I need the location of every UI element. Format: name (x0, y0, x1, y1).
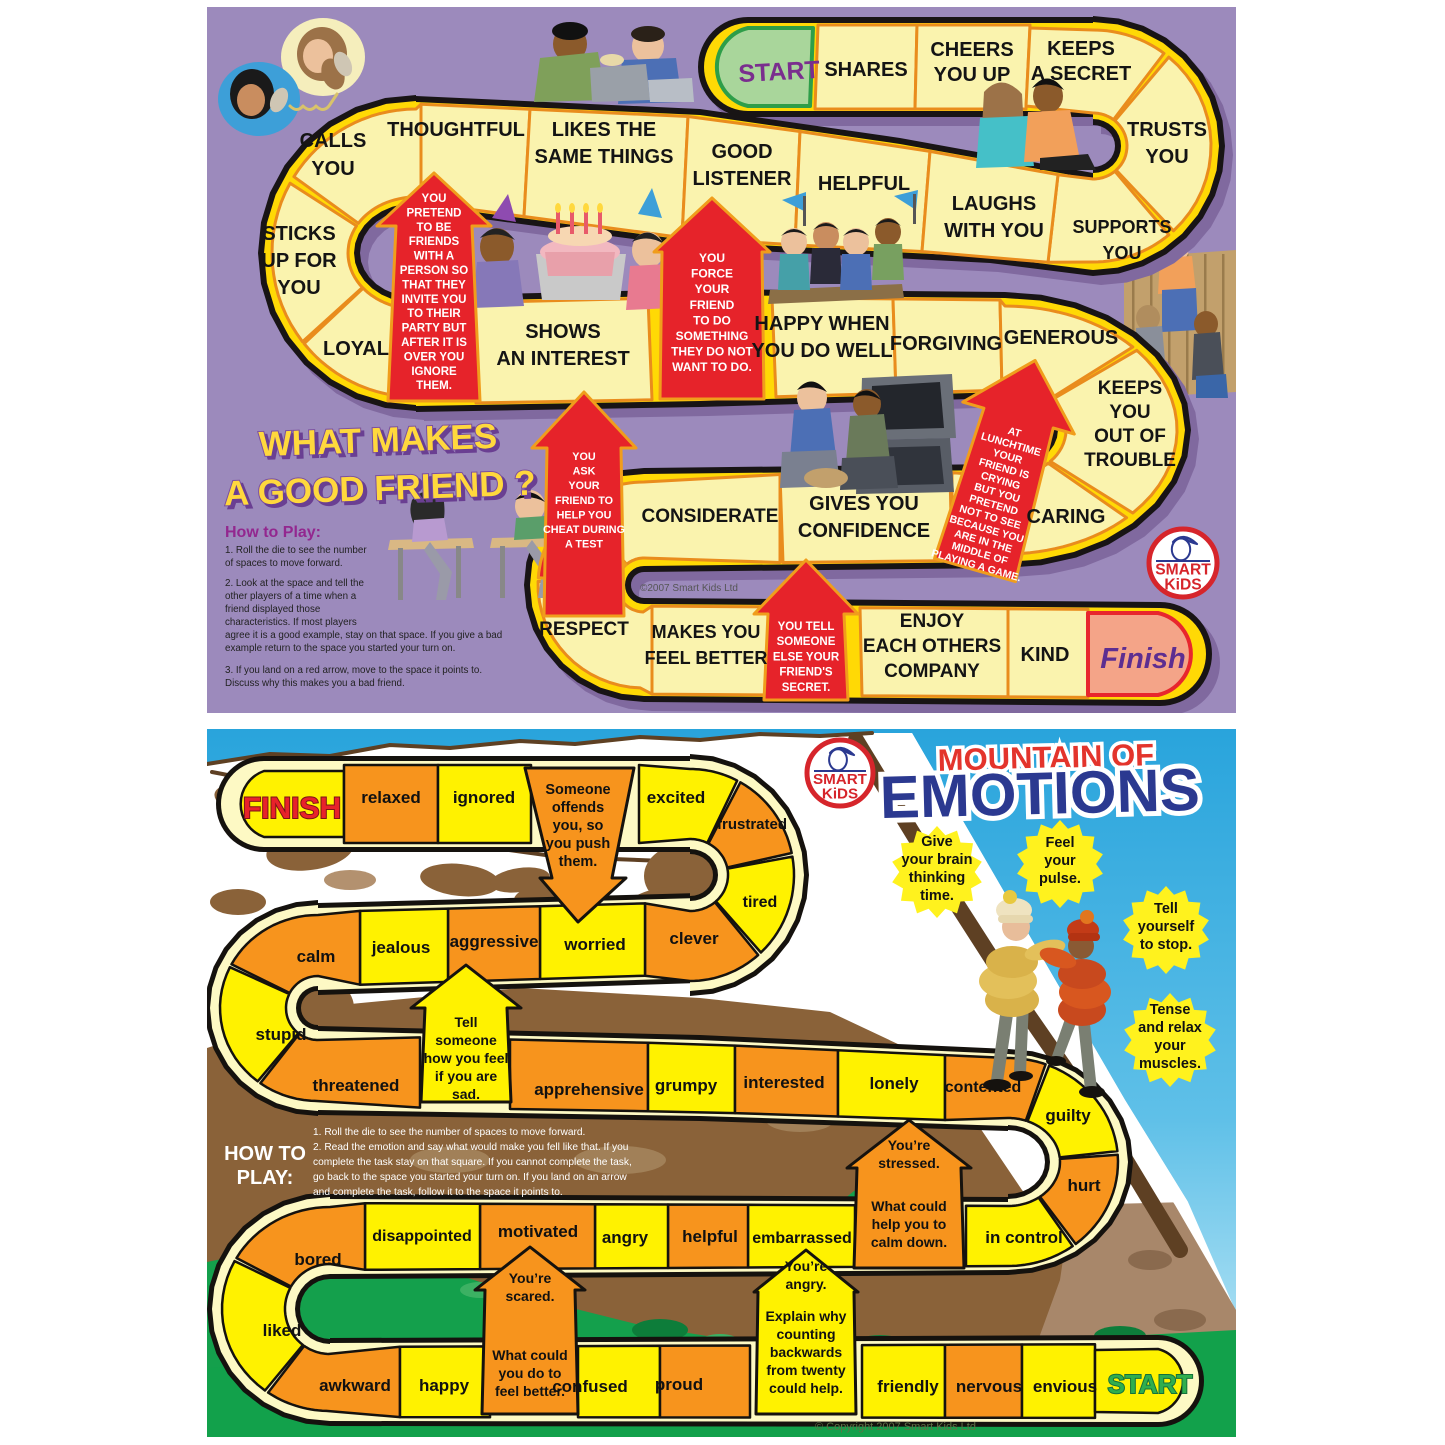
svg-text:START: START (738, 56, 821, 88)
svg-text:Tense: Tense (1150, 1002, 1191, 1018)
svg-text:HAPPY WHEN: HAPPY WHEN (754, 313, 889, 335)
svg-text:SHOWS: SHOWS (525, 321, 601, 343)
svg-text:THOUGHTFUL: THOUGHTFUL (387, 119, 525, 141)
svg-text:1. Roll the die to see the num: 1. Roll the die to see the number of spa… (313, 1127, 585, 1138)
svg-text:YOU UP: YOU UP (934, 64, 1011, 86)
svg-text:pulse.: pulse. (1039, 871, 1081, 887)
svg-text:KEEPS: KEEPS (1098, 378, 1162, 399)
svg-text:stupid: stupid (256, 1025, 307, 1044)
svg-text:KEEPS: KEEPS (1047, 38, 1115, 60)
svg-text:A SECRET: A SECRET (1031, 63, 1131, 85)
svg-text:UP FOR: UP FOR (261, 250, 337, 272)
svg-text:hurt: hurt (1067, 1176, 1100, 1195)
svg-text:STICKS: STICKS (262, 223, 335, 245)
svg-text:stressed.: stressed. (878, 1155, 939, 1171)
svg-text:SECRET.: SECRET. (782, 682, 831, 694)
svg-text:friendly: friendly (877, 1377, 939, 1396)
svg-text:INVITE YOU: INVITE YOU (402, 294, 467, 306)
svg-text:relaxed: relaxed (361, 788, 421, 807)
svg-text:counting: counting (776, 1326, 835, 1342)
svg-text:3. If you land on a red arrow,: 3. If you land on a red arrow, move to t… (225, 665, 482, 676)
svg-text:your: your (1154, 1038, 1186, 1054)
svg-text:LIKES THE: LIKES THE (552, 119, 656, 141)
svg-text:FORCE: FORCE (691, 267, 733, 281)
svg-text:SOMETHING: SOMETHING (676, 329, 749, 343)
svg-text:angry: angry (602, 1228, 649, 1247)
svg-text:Tell: Tell (1154, 901, 1178, 917)
svg-text:Discuss why this makes you a b: Discuss why this makes you a bad friend. (225, 678, 405, 689)
svg-text:THAT THEY: THAT THEY (402, 279, 466, 291)
svg-text:MAKES YOU: MAKES YOU (652, 622, 761, 642)
svg-text:worried: worried (563, 935, 625, 954)
svg-text:threatened: threatened (313, 1076, 400, 1095)
svg-text:PRETEND: PRETEND (407, 207, 462, 219)
svg-text:motivated: motivated (498, 1222, 578, 1241)
svg-text:lonely: lonely (869, 1074, 919, 1093)
svg-text:envious: envious (1033, 1377, 1097, 1396)
svg-text:bored: bored (294, 1250, 341, 1269)
svg-text:YOUR: YOUR (568, 480, 599, 492)
svg-text:Finish: Finish (1100, 643, 1185, 675)
svg-text:if you are: if you are (435, 1068, 497, 1084)
svg-text:complete the task stay on that: complete the task stay on that square. I… (313, 1157, 632, 1168)
svg-text:your brain: your brain (902, 852, 973, 868)
svg-text:What could: What could (492, 1347, 567, 1363)
svg-text:YOUR: YOUR (695, 282, 730, 296)
svg-text:FEEL BETTER: FEEL BETTER (645, 648, 768, 668)
svg-text:how you feel: how you feel (424, 1050, 509, 1066)
svg-text:WHAT MAKES: WHAT MAKES (258, 417, 498, 464)
svg-text:YOU: YOU (1109, 402, 1150, 423)
svg-text:GIVES YOU: GIVES YOU (809, 493, 919, 515)
svg-text:them.: them. (559, 854, 598, 870)
svg-text:CHEAT DURING: CHEAT DURING (543, 524, 625, 536)
svg-text:YOU: YOU (277, 277, 320, 299)
svg-text:jealous: jealous (371, 938, 431, 957)
svg-text:FRIENDS: FRIENDS (409, 236, 460, 248)
svg-text:backwards: backwards (770, 1344, 843, 1360)
svg-text:guilty: guilty (1045, 1106, 1091, 1125)
svg-text:TO DO: TO DO (693, 313, 731, 327)
svg-text:FRIEND'S: FRIEND'S (779, 667, 833, 679)
svg-text:frustrated: frustrated (717, 816, 787, 833)
svg-text:calm down.: calm down. (871, 1234, 947, 1250)
svg-text:GENEROUS: GENEROUS (1004, 327, 1118, 349)
svg-text:Give: Give (921, 834, 952, 850)
svg-text:KIND: KIND (1021, 644, 1070, 666)
svg-text:friend displayed those: friend displayed those (225, 604, 321, 615)
svg-text:FRIEND: FRIEND (690, 298, 735, 312)
svg-text:EMOTIONS: EMOTIONS (879, 756, 1201, 831)
svg-text:START: START (1108, 1369, 1193, 1399)
svg-text:ENJOY: ENJOY (900, 611, 965, 632)
svg-text:PLAY:: PLAY: (237, 1167, 294, 1189)
svg-text:your: your (1044, 853, 1076, 869)
svg-text:interested: interested (743, 1073, 824, 1092)
svg-text:SUPPORTS: SUPPORTS (1072, 217, 1171, 237)
svg-text:ELSE YOUR: ELSE YOUR (773, 651, 840, 663)
svg-text:CALLS: CALLS (300, 130, 367, 152)
svg-text:YOU: YOU (311, 158, 354, 180)
svg-text:A TEST: A TEST (565, 539, 603, 551)
svg-text:calm: calm (297, 947, 336, 966)
svg-text:FINISH: FINISH (243, 792, 341, 825)
svg-text:CARING: CARING (1027, 506, 1106, 528)
svg-text:disappointed: disappointed (372, 1228, 472, 1245)
svg-text:You’re: You’re (888, 1137, 931, 1153)
svg-text:Feel: Feel (1045, 835, 1074, 851)
svg-text:KiDS: KiDS (822, 786, 858, 803)
svg-text:go back to the space you start: go back to the space you started your tu… (313, 1172, 627, 1183)
svg-text:apprehensive: apprehensive (534, 1080, 644, 1099)
svg-text:proud: proud (655, 1375, 703, 1394)
svg-text:sad.: sad. (452, 1086, 480, 1102)
svg-text:YOU TELL: YOU TELL (778, 621, 835, 633)
svg-text:tired: tired (743, 894, 778, 911)
svg-text:characteristics. If most playe: characteristics. If most players (225, 617, 357, 628)
svg-text:helpful: helpful (682, 1227, 738, 1246)
svg-text:PERSON SO: PERSON SO (400, 265, 468, 277)
svg-text:WITH A: WITH A (414, 251, 454, 263)
svg-text:liked: liked (263, 1321, 302, 1340)
svg-text:time.: time. (920, 888, 954, 904)
svg-text:thinking: thinking (909, 870, 965, 886)
svg-text:©2007 Smart Kids Ltd: ©2007 Smart Kids Ltd (640, 583, 738, 594)
svg-text:confused: confused (552, 1377, 628, 1396)
svg-text:CHEERS: CHEERS (930, 39, 1013, 61)
svg-text:awkward: awkward (319, 1376, 391, 1395)
svg-text:offends: offends (552, 800, 604, 816)
svg-text:TO BE: TO BE (417, 222, 452, 234)
svg-text:and relax: and relax (1138, 1020, 1202, 1036)
svg-text:TROUBLE: TROUBLE (1084, 450, 1176, 471)
svg-text:grumpy: grumpy (655, 1076, 718, 1095)
svg-text:clever: clever (669, 929, 719, 948)
svg-text:someone: someone (435, 1032, 497, 1048)
svg-text:2. Look at the space and tell: 2. Look at the space and tell the (225, 578, 364, 589)
svg-text:happy: happy (419, 1376, 470, 1395)
svg-text:You’re: You’re (509, 1270, 552, 1286)
svg-text:You’re: You’re (785, 1258, 828, 1274)
svg-text:AFTER IT IS: AFTER IT IS (401, 337, 467, 349)
svg-text:you push: you push (546, 836, 610, 852)
svg-text:aggressive: aggressive (450, 932, 539, 951)
svg-text:LOYAL: LOYAL (323, 338, 389, 360)
svg-text:2. Read the emotion and say wh: 2. Read the emotion and say what would m… (313, 1142, 628, 1153)
svg-text:in control: in control (985, 1228, 1062, 1247)
svg-text:HOW TO: HOW TO (224, 1143, 306, 1165)
svg-text:THEY DO NOT: THEY DO NOT (671, 345, 753, 359)
svg-text:YOU: YOU (572, 451, 596, 463)
svg-text:RESPECT: RESPECT (539, 619, 629, 640)
svg-text:WITH YOU: WITH YOU (944, 220, 1044, 242)
svg-text:YOU: YOU (422, 193, 447, 205)
svg-text:yourself: yourself (1138, 919, 1195, 935)
svg-text:IGNORE: IGNORE (411, 366, 457, 378)
svg-text:COMPANY: COMPANY (884, 661, 980, 682)
svg-text:How to Play:: How to Play: (225, 524, 321, 541)
svg-text:YOU: YOU (699, 251, 725, 265)
svg-text:© Copyright 2007 Smart Kids Lt: © Copyright 2007 Smart Kids Ltd (815, 1421, 976, 1433)
svg-text:help you to: help you to (872, 1216, 947, 1232)
svg-text:CONFIDENCE: CONFIDENCE (798, 520, 930, 542)
svg-text:other players of a time when a: other players of a time when a (225, 591, 357, 602)
svg-text:LISTENER: LISTENER (693, 168, 792, 190)
svg-text:PARTY BUT: PARTY BUT (402, 323, 467, 335)
svg-text:LAUGHS: LAUGHS (952, 193, 1036, 215)
svg-text:HELPFUL: HELPFUL (818, 173, 910, 195)
svg-text:CONSIDERATE: CONSIDERATE (642, 506, 779, 527)
svg-text:AN INTEREST: AN INTEREST (496, 348, 629, 370)
svg-text:1. Roll the die to see the num: 1. Roll the die to see the number (225, 545, 367, 556)
svg-text:EACH OTHERS: EACH OTHERS (863, 636, 1001, 657)
svg-text:Someone: Someone (545, 782, 610, 798)
svg-text:example return to the space yo: example return to the space you started … (225, 643, 455, 654)
svg-text:SAME THINGS: SAME THINGS (535, 146, 674, 168)
svg-text:contented: contented (945, 1079, 1021, 1096)
svg-text:THEM.: THEM. (416, 380, 452, 392)
svg-text:YOU: YOU (1145, 146, 1188, 168)
svg-text:FRIEND TO: FRIEND TO (555, 495, 613, 507)
svg-text:embarrassed: embarrassed (752, 1230, 852, 1247)
svg-text:YOU: YOU (1102, 243, 1141, 263)
svg-text:scared.: scared. (505, 1288, 554, 1304)
svg-text:TRUSTS: TRUSTS (1127, 119, 1207, 141)
svg-text:to stop.: to stop. (1140, 937, 1192, 953)
svg-text:could help.: could help. (769, 1380, 843, 1396)
svg-text:ASK: ASK (573, 466, 596, 478)
svg-text:TO THEIR: TO THEIR (407, 308, 461, 320)
svg-text:SOMEONE: SOMEONE (777, 636, 836, 648)
svg-text:and complete the task, follow: and complete the task, follow it to the … (313, 1187, 563, 1198)
svg-text:excited: excited (647, 788, 706, 807)
svg-text:HELP YOU: HELP YOU (557, 509, 612, 521)
svg-text:WANT TO DO.: WANT TO DO. (672, 360, 752, 374)
svg-text:from twenty: from twenty (766, 1362, 846, 1378)
svg-text:of spaces to move forward.: of spaces to move forward. (225, 558, 343, 569)
svg-text:Explain why: Explain why (766, 1308, 847, 1324)
svg-text:OVER YOU: OVER YOU (404, 351, 465, 363)
svg-text:agree it is a good example, st: agree it is a good example, stay on that… (225, 630, 502, 641)
svg-text:What could: What could (871, 1198, 946, 1214)
svg-text:KiDS: KiDS (1164, 577, 1201, 594)
svg-text:angry.: angry. (786, 1276, 827, 1292)
svg-text:OUT OF: OUT OF (1094, 426, 1166, 447)
svg-text:Tell: Tell (454, 1014, 477, 1030)
svg-text:ignored: ignored (453, 788, 515, 807)
svg-text:GOOD: GOOD (711, 141, 772, 163)
svg-text:you, so: you, so (553, 818, 604, 834)
svg-text:nervous: nervous (956, 1377, 1022, 1396)
svg-text:FORGIVING: FORGIVING (890, 333, 1002, 355)
svg-text:YOU DO WELL: YOU DO WELL (751, 340, 892, 362)
svg-text:SHARES: SHARES (824, 59, 907, 81)
svg-text:muscles.: muscles. (1139, 1056, 1201, 1072)
